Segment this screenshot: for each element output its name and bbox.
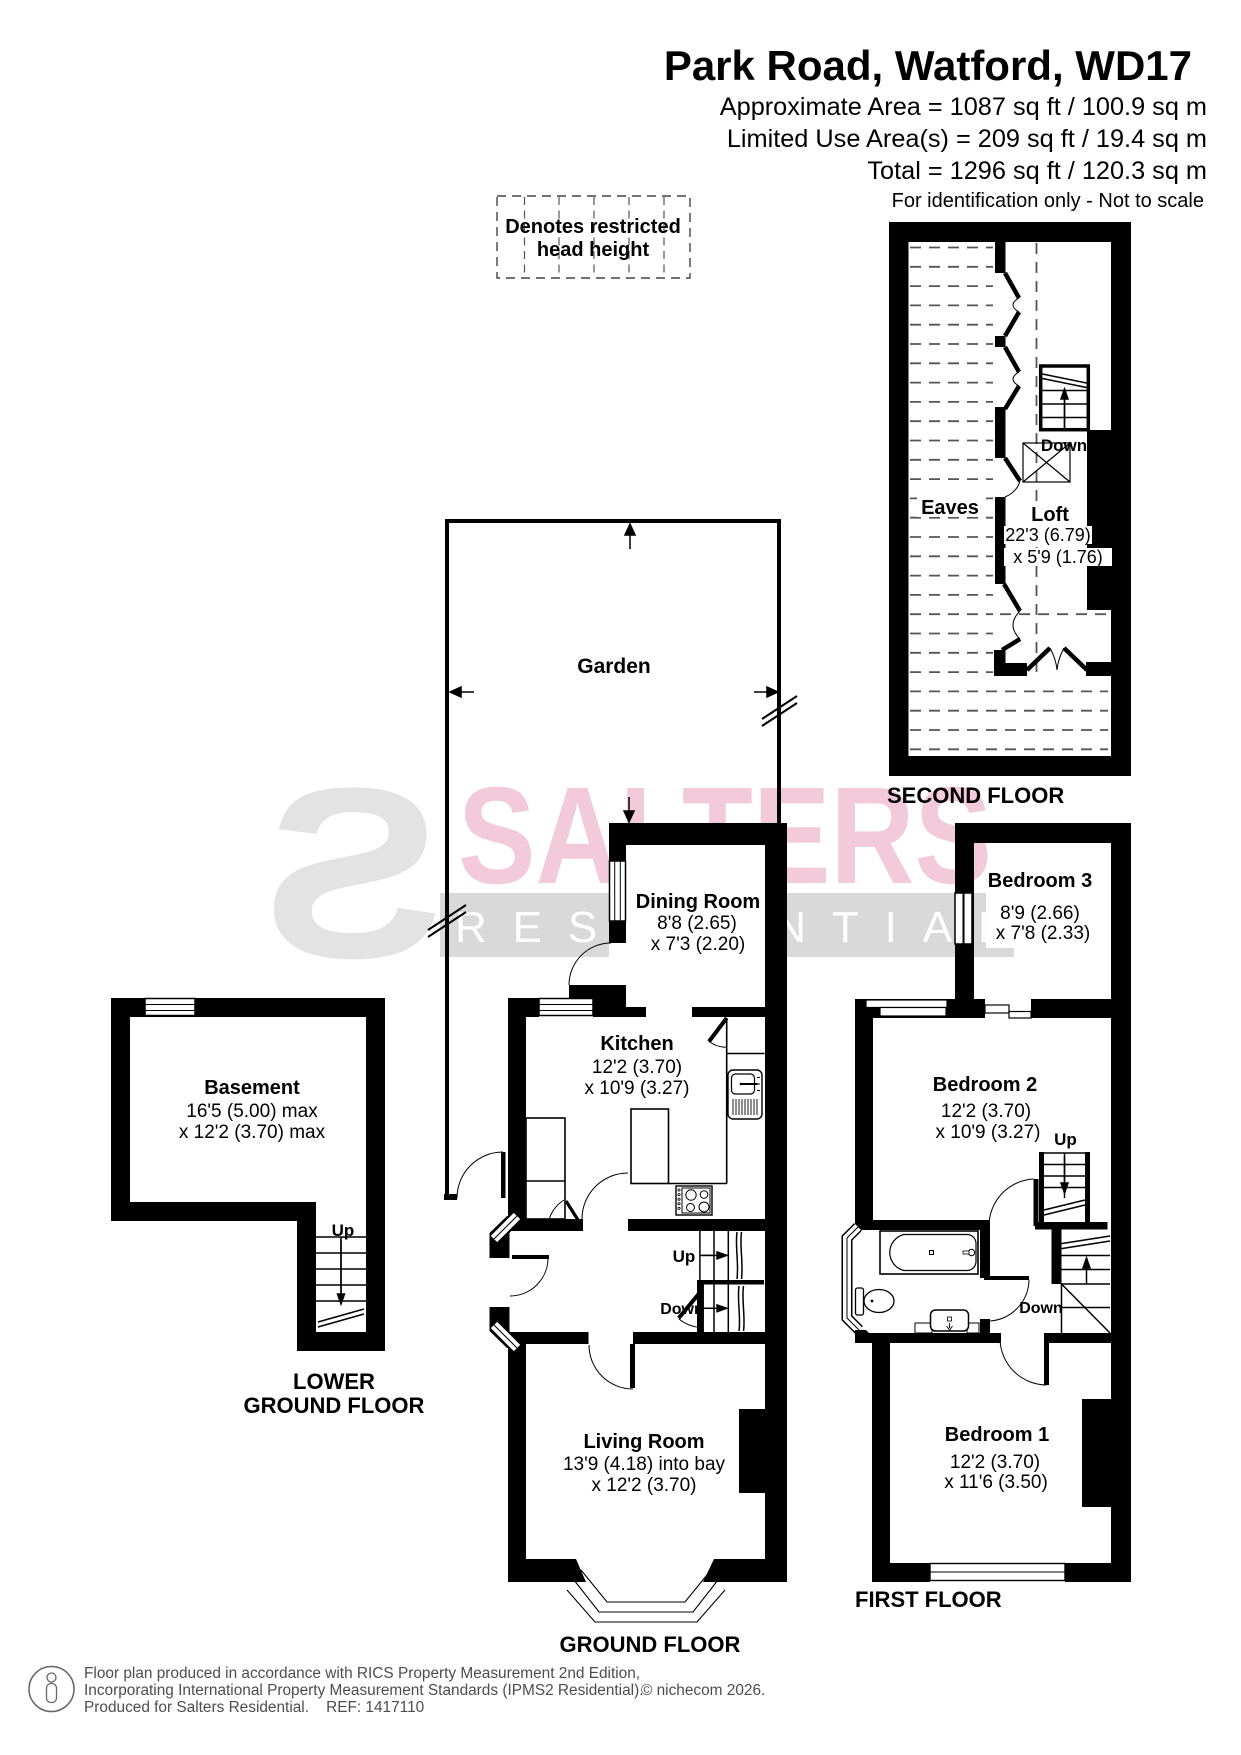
svg-text:22'3 (6.79): 22'3 (6.79) xyxy=(1005,525,1091,545)
svg-text:Eaves: Eaves xyxy=(921,497,979,519)
svg-text:12'2 (3.70): 12'2 (3.70) xyxy=(592,1057,682,1078)
svg-text:Bedroom 1: Bedroom 1 xyxy=(945,1424,1049,1446)
svg-text:Loft: Loft xyxy=(1031,504,1069,526)
svg-text:x 7'8 (2.33): x 7'8 (2.33) xyxy=(996,923,1090,944)
svg-text:x 7'3 (2.20): x 7'3 (2.20) xyxy=(651,934,745,955)
svg-text:Total = 1296 sq ft / 120.3 sq: Total = 1296 sq ft / 120.3 sq m xyxy=(867,157,1207,185)
svg-text:x 11'6 (3.50): x 11'6 (3.50) xyxy=(944,1472,1048,1493)
svg-text:For identification only - Not: For identification only - Not to scale xyxy=(892,190,1204,212)
svg-text:x 12'2 (3.70): x 12'2 (3.70) xyxy=(591,1475,696,1496)
svg-text:GROUND FLOOR: GROUND FLOOR xyxy=(244,1393,425,1418)
svg-text:Down: Down xyxy=(1041,436,1087,455)
svg-text:16'5 (5.00) max: 16'5 (5.00) max xyxy=(186,1101,318,1122)
svg-text:head height: head height xyxy=(537,239,650,261)
svg-text:8'9 (2.66): 8'9 (2.66) xyxy=(1000,903,1080,924)
svg-text:Living Room: Living Room xyxy=(583,1431,704,1453)
svg-text:x 10'9 (3.27): x 10'9 (3.27) xyxy=(935,1122,1040,1143)
svg-text:x 12'2 (3.70) max: x 12'2 (3.70) max xyxy=(179,1122,326,1143)
svg-text:13'9 (4.18) into bay: 13'9 (4.18) into bay xyxy=(563,1454,726,1475)
svg-text:FIRST FLOOR: FIRST FLOOR xyxy=(855,1587,1002,1612)
svg-text:Up: Up xyxy=(332,1221,355,1240)
svg-text:8'8 (2.65): 8'8 (2.65) xyxy=(657,913,737,934)
svg-text:Down: Down xyxy=(660,1301,704,1318)
svg-text:SECOND FLOOR: SECOND FLOOR xyxy=(887,783,1064,808)
svg-text:Up: Up xyxy=(1054,1130,1077,1149)
svg-text:Bedroom 3: Bedroom 3 xyxy=(988,870,1092,892)
svg-text:Up: Up xyxy=(673,1247,696,1266)
svg-text:12'2 (3.70): 12'2 (3.70) xyxy=(950,1452,1040,1473)
svg-text:Bedroom 2: Bedroom 2 xyxy=(933,1074,1037,1096)
svg-text:Garden: Garden xyxy=(577,655,651,678)
svg-text:Basement: Basement xyxy=(204,1077,300,1099)
svg-text:Incorporating International Pr: Incorporating International Property Mea… xyxy=(84,1682,643,1699)
svg-text:Kitchen: Kitchen xyxy=(600,1033,673,1055)
svg-text:Denotes restricted: Denotes restricted xyxy=(505,216,681,238)
svg-text:x 10'9 (3.27): x 10'9 (3.27) xyxy=(584,1078,689,1099)
svg-text:Dining Room: Dining Room xyxy=(636,891,760,913)
svg-text:Park Road, Watford, WD17: Park Road, Watford, WD17 xyxy=(664,42,1192,89)
svg-text:Down: Down xyxy=(1019,1300,1063,1317)
svg-text:12'2 (3.70): 12'2 (3.70) xyxy=(941,1101,1031,1122)
svg-text:x 5'9 (1.76): x 5'9 (1.76) xyxy=(1013,547,1102,567)
svg-text:Limited Use Area(s) = 209 sq f: Limited Use Area(s) = 209 sq ft / 19.4 s… xyxy=(727,125,1207,153)
svg-text:Floor plan produced in accorda: Floor plan produced in accordance with R… xyxy=(84,1665,640,1682)
svg-text:Produced for Salters Residenti: Produced for Salters Residential. REF: 1… xyxy=(84,1699,424,1716)
svg-text:S: S xyxy=(263,738,443,1009)
svg-text:LOWER: LOWER xyxy=(293,1369,375,1394)
svg-text:© nichecom 2026.: © nichecom 2026. xyxy=(641,1682,765,1699)
svg-text:Approximate Area = 1087 sq ft: Approximate Area = 1087 sq ft / 100.9 sq… xyxy=(720,93,1207,121)
svg-text:GROUND FLOOR: GROUND FLOOR xyxy=(560,1632,741,1657)
